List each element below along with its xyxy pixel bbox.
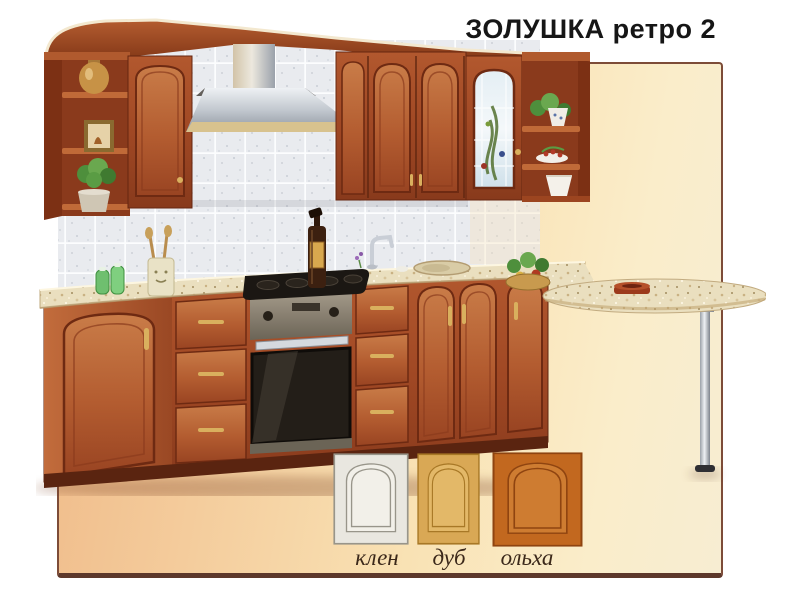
built-in-oven	[250, 288, 352, 454]
drawer-unit-right	[356, 286, 408, 446]
picture-frame	[84, 120, 114, 152]
base-corner-cabinet	[44, 298, 172, 482]
bar-table	[543, 264, 766, 313]
kitchen-photo	[36, 4, 766, 496]
tall-wall-cabinet	[128, 56, 192, 208]
chrome-bar-leg	[689, 304, 721, 478]
finish-swatch-dub	[417, 453, 480, 545]
finish-label-olha: ольха	[475, 545, 579, 571]
product-title: ЗОЛУШКА ретро 2	[450, 14, 716, 45]
knob	[515, 149, 521, 155]
drawer-unit-left	[176, 297, 246, 463]
finish-swatch-klen	[333, 453, 409, 545]
ashtray	[614, 282, 650, 294]
glass-door-cabinet	[466, 56, 522, 200]
corner-shelf-left	[44, 52, 130, 220]
end-base-cabinet	[508, 283, 542, 432]
knob	[177, 177, 183, 183]
advertisement-page: ЗОЛУШКА ретро 2	[0, 0, 800, 600]
finish-swatch-olha	[492, 452, 583, 547]
wall-cabinets	[336, 52, 466, 200]
corner-shelf-right	[522, 52, 590, 202]
